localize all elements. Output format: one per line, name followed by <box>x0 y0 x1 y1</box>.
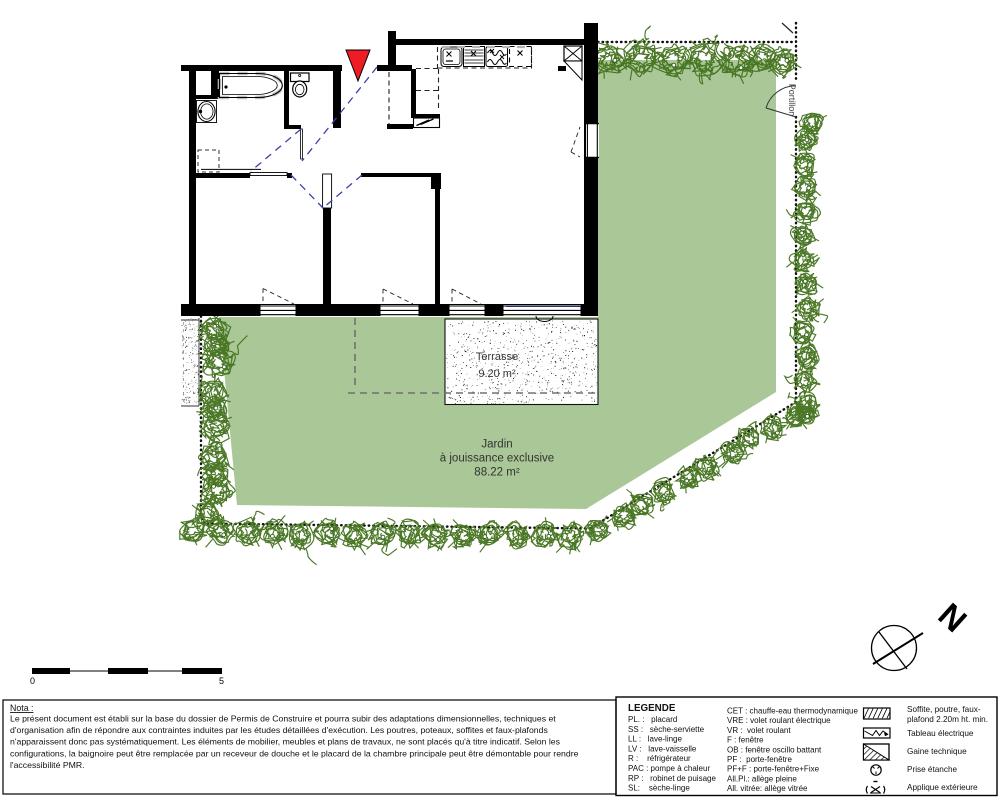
svg-text:Applique extérieure: Applique extérieure <box>907 783 978 792</box>
svg-text:9.20 m²: 9.20 m² <box>478 368 516 380</box>
svg-text:d'organisation afin de répondr: d'organisation afin de répondre aux cont… <box>10 725 548 735</box>
svg-text:CET : chauffe-eau thermodynami: CET : chauffe-eau thermodynamique <box>727 707 858 716</box>
svg-text:VRE : volet roulant électrique: VRE : volet roulant électrique <box>727 716 831 725</box>
svg-text:LV : lave-vaisselle: LV : lave-vaisselle <box>628 744 697 753</box>
svg-text:PAC : pompe à chaleur: PAC : pompe à chaleur <box>628 764 710 773</box>
svg-text:All. vitrée: allège vitrée: All. vitrée: allège vitrée <box>727 784 808 793</box>
svg-text:Prise étanche: Prise étanche <box>907 765 958 774</box>
svg-text:Portillon: Portillon <box>787 84 797 117</box>
svg-text:OB : fenêtre oscillo battant: OB : fenêtre oscillo battant <box>727 745 822 754</box>
svg-text:Soffite, poutre, faux-: Soffite, poutre, faux- <box>907 705 981 714</box>
svg-text:n'apparaissent donc pas systém: n'apparaissent donc pas systématiquement… <box>10 737 561 747</box>
svg-text:PF : porte-fenêtre: PF : porte-fenêtre <box>727 755 792 764</box>
svg-text:F : fenêtre: F : fenêtre <box>727 736 764 745</box>
svg-text:à jouissance exclusive: à jouissance exclusive <box>440 453 554 465</box>
svg-text:LEGENDE: LEGENDE <box>628 703 676 714</box>
svg-text:Tableau électrique: Tableau électrique <box>907 729 974 738</box>
svg-text:Jardin: Jardin <box>481 439 512 451</box>
svg-text:Le présent document est établi: Le présent document est établi sur la ba… <box>10 714 556 724</box>
svg-text:N: N <box>931 596 973 639</box>
svg-text:Terrasse: Terrasse <box>476 351 518 363</box>
svg-text:PL. : placard: PL. : placard <box>628 715 677 724</box>
svg-text:All.Pl.: allège pleine: All.Pl.: allège pleine <box>727 774 797 783</box>
svg-text:PF+F : porte-fenêtre+Fixe: PF+F : porte-fenêtre+Fixe <box>727 765 820 774</box>
svg-text:Nota :: Nota : <box>10 703 33 713</box>
svg-text:plafond 2.20m ht. min.: plafond 2.20m ht. min. <box>907 715 988 724</box>
svg-text:5: 5 <box>219 676 224 686</box>
svg-text:SL: sèche-linge: SL: sèche-linge <box>628 784 690 793</box>
svg-text:Gaine technique: Gaine technique <box>907 747 967 756</box>
svg-text:l'accessibilité PMR.: l'accessibilité PMR. <box>10 760 85 770</box>
svg-text:VR : volet roulant: VR : volet roulant <box>727 726 791 735</box>
svg-text:0: 0 <box>30 676 35 686</box>
svg-text:SS : sèche-serviette: SS : sèche-serviette <box>628 725 705 734</box>
svg-text:LL : lave-linge: LL : lave-linge <box>628 735 683 744</box>
svg-text:88.22 m²: 88.22 m² <box>474 467 520 479</box>
svg-text:R : réfrigérateur: R : réfrigérateur <box>628 754 691 763</box>
svg-text:RP : robinet de puisage: RP : robinet de puisage <box>628 774 716 783</box>
svg-text:configurations, la baignoire p: configurations, la baignoire peut être r… <box>10 748 579 758</box>
